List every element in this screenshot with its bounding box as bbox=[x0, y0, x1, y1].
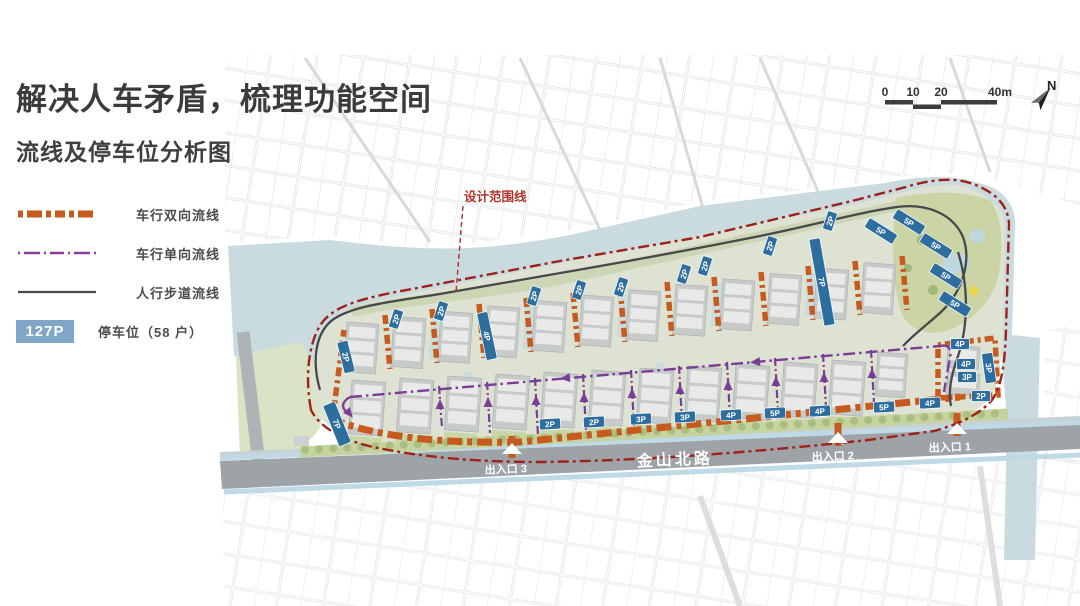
parking-tag: 4P bbox=[919, 397, 941, 409]
building bbox=[532, 300, 567, 352]
parking-tag-label: 2P bbox=[545, 420, 556, 430]
parking-tag: 2P bbox=[583, 416, 605, 428]
parking-tag: 4P bbox=[951, 339, 970, 350]
scale-40m: 40m bbox=[988, 85, 1012, 99]
scale-10: 10 bbox=[906, 85, 920, 99]
building bbox=[767, 273, 802, 325]
scale-20: 20 bbox=[934, 85, 948, 99]
legend-item-one-way: 车行单向流线 bbox=[16, 241, 220, 265]
building bbox=[396, 378, 434, 434]
legend-label: 停车位（58 户） bbox=[98, 322, 203, 341]
parking-tag: 3P bbox=[630, 413, 652, 425]
legend-label: 人行步道流线 bbox=[136, 283, 220, 302]
design-boundary-label: 设计范围线 bbox=[464, 189, 527, 204]
parking-tag-label: 5P bbox=[879, 403, 890, 413]
pedestrian-line-swatch bbox=[16, 286, 98, 298]
parking-tag: 5P bbox=[764, 407, 786, 419]
parking-tag-label: 2P bbox=[976, 392, 986, 401]
legend-item-parking: 127P 停车位（58 户） bbox=[16, 319, 220, 343]
parking-tag: 4P bbox=[809, 405, 831, 417]
parking-tag-label: 2P bbox=[589, 418, 600, 428]
parking-tag-label: 4P bbox=[955, 340, 965, 349]
parking-tag: 2P bbox=[972, 391, 991, 402]
parking-tag-label: 3P bbox=[680, 413, 691, 423]
parking-tag: 4P bbox=[957, 359, 976, 370]
parking-tag-label: 4P bbox=[961, 360, 971, 369]
legend-label: 车行双向流线 bbox=[136, 205, 220, 224]
parking-count-badge: 127P bbox=[16, 320, 74, 343]
legend-label: 车行单向流线 bbox=[136, 244, 220, 263]
parking-tag: 2P bbox=[539, 418, 561, 430]
building bbox=[875, 352, 908, 398]
parking-tag-label: 3P bbox=[962, 373, 972, 382]
parking-tag-label: 4P bbox=[815, 407, 826, 417]
header: 解决人车矛盾，梳理功能空间 流线及停车位分析图 bbox=[16, 74, 432, 167]
building bbox=[579, 295, 614, 347]
north-label: N bbox=[1047, 78, 1056, 93]
scale-0: 0 bbox=[882, 85, 889, 99]
two-way-line-swatch bbox=[16, 208, 98, 220]
building bbox=[720, 279, 755, 331]
parking-tag: 3P bbox=[958, 372, 977, 383]
parking-tag: 4P bbox=[720, 409, 742, 421]
parking-tag-label: 5P bbox=[770, 409, 781, 419]
parking-tag-label: 3P bbox=[983, 363, 993, 375]
slide: 设计范围线 2P4P7P7P5P5P5P5P5P3P2P2P2P2P2P2P2P… bbox=[0, 0, 1080, 606]
parking-tag: 3P bbox=[674, 411, 696, 423]
building bbox=[444, 376, 482, 432]
parking-tag-label: 4P bbox=[925, 399, 936, 409]
parking-tag-label: 4P bbox=[726, 411, 737, 421]
legend-item-pedestrian: 人行步道流线 bbox=[16, 280, 220, 304]
page-subtitle: 流线及停车位分析图 bbox=[16, 133, 432, 167]
page-title: 解决人车矛盾，梳理功能空间 bbox=[16, 74, 432, 119]
building bbox=[626, 290, 661, 342]
building bbox=[861, 263, 896, 315]
legend: 车行双向流线 车行单向流线 人行步道流线 127P 停车位（58 户） bbox=[16, 202, 220, 358]
legend-item-two-way: 车行双向流线 bbox=[16, 202, 220, 226]
building bbox=[673, 284, 708, 336]
parking-tag-label: 3P bbox=[636, 415, 647, 425]
parking-tag: 5P bbox=[873, 401, 895, 413]
one-way-line-swatch bbox=[16, 247, 98, 259]
